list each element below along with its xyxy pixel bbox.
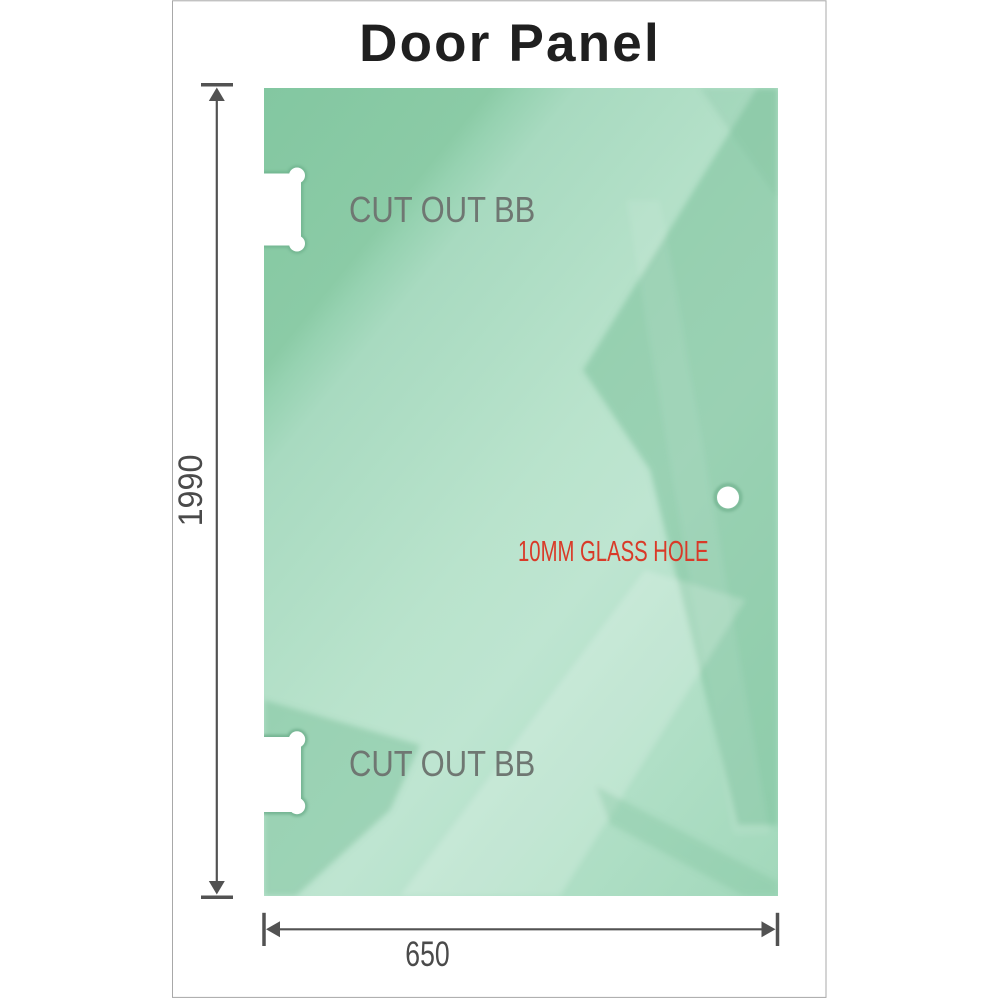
svg-text:CUT OUT BB: CUT OUT BB [349,745,535,785]
svg-text:Door Panel: Door Panel [359,14,661,73]
svg-text:CUT OUT BB: CUT OUT BB [349,191,535,231]
svg-text:10MM GLASS HOLE: 10MM GLASS HOLE [518,536,709,568]
svg-text:650: 650 [405,934,449,974]
svg-text:1990: 1990 [172,455,210,527]
